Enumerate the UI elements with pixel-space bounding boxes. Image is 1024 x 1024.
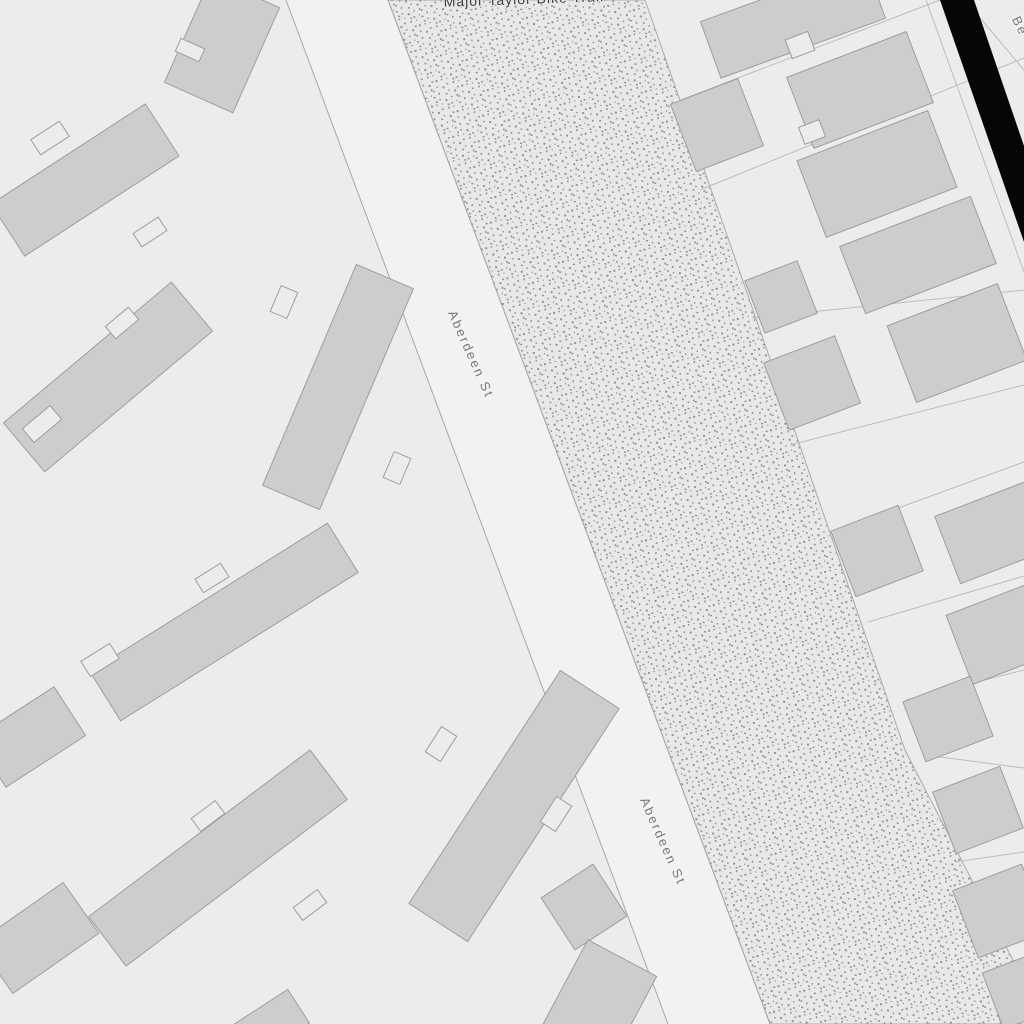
map-canvas[interactable]: Aberdeen St Aberdeen St Major Taylor Bik… [0, 0, 1024, 1024]
